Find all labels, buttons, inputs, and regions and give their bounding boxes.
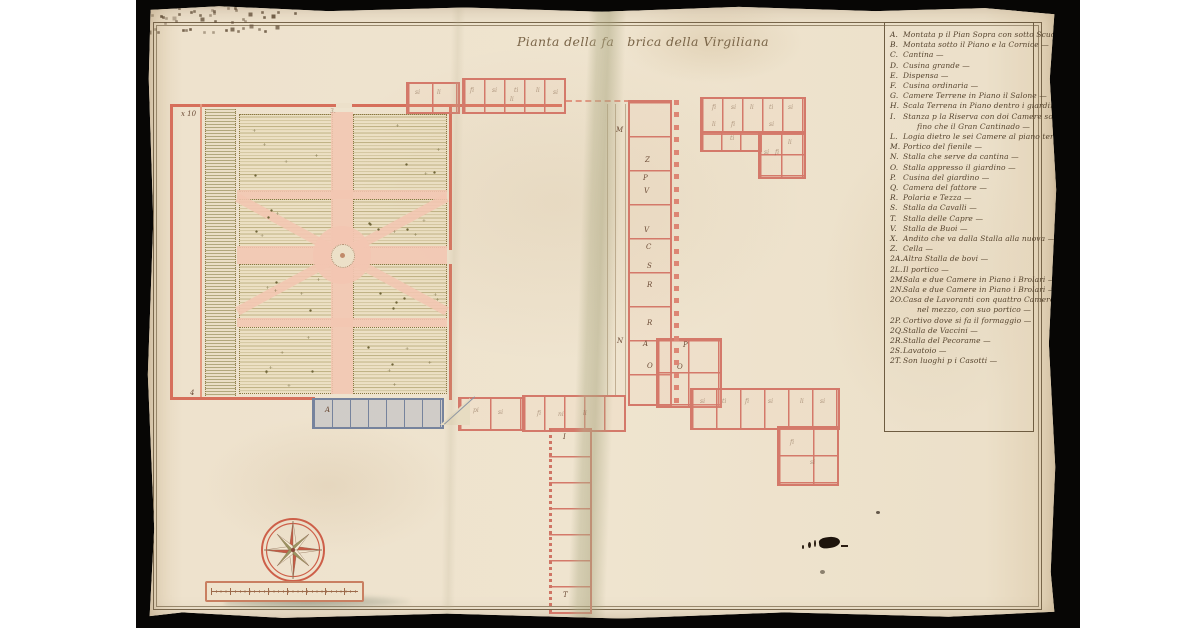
legend-letter: 2P. <box>890 316 903 325</box>
legend-entry: V.Stalla de Buoi — <box>890 224 968 233</box>
legend-letter: 2L. <box>890 265 903 274</box>
room-scribble: 3. <box>330 109 336 115</box>
colonnade-pillar <box>674 162 679 167</box>
room-scribble: fi <box>745 399 749 405</box>
room-scribble: si <box>820 399 825 405</box>
legend-text: Cortivo dove si fa il formaggio — <box>903 316 1031 325</box>
room-scribble: li <box>583 411 587 417</box>
garden-bed <box>353 327 447 394</box>
ink-speck <box>876 511 880 514</box>
building-northeast-upper <box>700 97 806 135</box>
legend-entry: 2A.Altra Stalla de bovi — <box>890 254 988 263</box>
legend-entry: O.Stalla appresso il giardino — <box>890 163 1016 172</box>
legend-entry: 2T.Son luoghi p i Casotti — <box>890 356 997 365</box>
legend-entry: 2M.Sala e due Camere in Piano i Brolari … <box>890 275 1056 284</box>
garden-bed <box>353 114 447 192</box>
legend-entry: G.Camere Terrene in Piano il Salone — <box>890 91 1047 100</box>
legend-letter: D. <box>890 61 903 70</box>
legend-entry: F.Cusina ordinaria — <box>890 81 978 90</box>
legend-entry: 2Q.Stalla de Vaccini — <box>890 326 978 335</box>
garden-circle-dot <box>340 253 345 258</box>
ink-speck <box>808 542 811 548</box>
legend-letter: 2M. <box>890 275 903 284</box>
legend-letter: B. <box>890 40 903 49</box>
room-scribble: si <box>769 122 774 128</box>
legend-entry: Q.Camera del fattore — <box>890 183 987 192</box>
tree-mark: + <box>280 351 284 356</box>
tree-mark <box>379 292 382 295</box>
room-scribble: pi <box>473 408 479 414</box>
room-letter-label: x 10 <box>181 111 196 118</box>
legend-entry: C.Cantina — <box>890 50 944 59</box>
legend-letter: 2Q. <box>890 326 903 335</box>
room-scribble: fi <box>537 411 541 417</box>
garden-path-row <box>237 190 447 199</box>
room-scribble: si <box>498 410 503 416</box>
legend-letter: 2A. <box>890 254 903 263</box>
tree-mark <box>267 216 270 219</box>
legend-entry: M.Portico del fienile — <box>890 142 982 151</box>
room-scribble: li <box>712 122 716 128</box>
legend-entry: P.Cusina del giardino — <box>890 173 989 182</box>
legend-entry: D.Cusina grande — <box>890 61 970 70</box>
legend-text: Son luoghi p i Casotti — <box>903 356 997 365</box>
legend-text: Cella — <box>903 244 933 253</box>
tree-mark: + <box>274 289 278 294</box>
tree-mark: + <box>266 286 270 291</box>
legend-letter: 2R. <box>890 336 903 345</box>
legend-box: A.Montata p il Pian Sopra con sotto Scud… <box>884 22 1034 432</box>
legend-text: Lavatoio — <box>903 346 947 355</box>
legend-entry: 2R.Stalla del Pecorame — <box>890 336 991 345</box>
tree-mark: + <box>287 384 291 389</box>
legend-text: Portico del fienile — <box>903 142 982 151</box>
legend-entry: 2P.Cortivo dove si fa il formaggio — <box>890 316 1031 325</box>
legend-entry: H.Scala Terrena in Piano dentro i giardi… <box>890 101 1068 110</box>
legend-entry: A.Montata p il Pian Sopra con sotto Scud… <box>890 30 1081 39</box>
colonnade-pillar <box>674 187 679 192</box>
legend-letter: 2T. <box>890 356 903 365</box>
room-letter-label: S <box>647 263 652 270</box>
tree-mark: + <box>422 219 426 224</box>
legend-entry: S.Stalla da Cavalli — <box>890 203 977 212</box>
legend-entry: X.Andito che va dalla Stalla alla nuova … <box>890 234 1055 243</box>
room-letter-label: R <box>647 320 652 327</box>
legend-text: Camera del fattore — <box>903 183 987 192</box>
legend-entry: 2N.Sala e due Camere in Piano i Brolari … <box>890 285 1056 294</box>
tree-mark: + <box>405 347 409 352</box>
room-letter-label: 4 <box>190 390 194 397</box>
tree-mark: + <box>393 383 397 388</box>
legend-text: Stalla da Cavalli — <box>903 203 977 212</box>
tree-mark: + <box>395 124 399 129</box>
legend-letter: F. <box>890 81 903 90</box>
tree-mark <box>433 171 436 174</box>
tree-mark: + <box>262 143 266 148</box>
room-letter-label: C <box>646 244 651 251</box>
legend-text: Stalla del Pecorame — <box>903 336 991 345</box>
room-scribble: si <box>810 460 815 466</box>
room-letter-label: R <box>647 282 652 289</box>
legend-letter: T. <box>890 214 903 223</box>
manuscript-scan: Pianta della fabrica della Virgiliana <box>0 0 1200 628</box>
tree-mark: + <box>314 154 318 159</box>
ink-speck <box>820 570 825 574</box>
legend-text: Camere Terrene in Piano il Salone — <box>903 91 1047 100</box>
legend-letter: A. <box>890 30 903 39</box>
legend-letter: 2S. <box>890 346 903 355</box>
room-letter-label: M <box>616 127 623 134</box>
room-scribble: li <box>750 105 754 111</box>
legend-letter: N. <box>890 152 903 161</box>
room-letter-label: P <box>643 175 648 182</box>
legend-text: fino che il Gran Cantinado — <box>917 122 1030 131</box>
garden-path-row <box>237 318 447 327</box>
legend-letter: V. <box>890 224 903 233</box>
tree-mark <box>377 228 380 231</box>
garden-bed <box>239 114 333 192</box>
room-letter-label: V <box>644 188 649 195</box>
legend-text: Il portico — <box>903 265 949 274</box>
tree-mark <box>391 363 394 366</box>
tree-mark: + <box>260 234 264 239</box>
tree-mark: + <box>428 361 432 366</box>
colonnade-pillar <box>674 274 679 279</box>
tree-mark: + <box>392 230 396 235</box>
colonnade-pillar <box>674 336 679 341</box>
legend-text: nel mezzo, con suo portico — <box>917 305 1031 314</box>
room-scribble: li <box>437 90 441 96</box>
colonnade-pillar <box>674 261 679 266</box>
legend-text: Stalla de Vaccini — <box>903 326 978 335</box>
room-scribble: si <box>764 150 769 156</box>
room-scribble: fi <box>731 122 735 128</box>
legend-text: Andito che va dalla Stalla alla nuova — <box>903 234 1055 243</box>
colonnade-pillar <box>674 398 679 403</box>
tree-mark: + <box>269 366 273 371</box>
room-letter-label: V <box>644 227 649 234</box>
room-scribble: fi <box>712 105 716 111</box>
room-scribble: li <box>510 97 514 103</box>
plan-title-part2: brica della Virgiliana <box>627 34 769 49</box>
legend-entry: 2L.Il portico — <box>890 265 949 274</box>
legend-letter: M. <box>890 142 903 151</box>
legend-letter: P. <box>890 173 903 182</box>
scale-bar <box>205 581 364 602</box>
room-scribble: fi <box>470 88 474 94</box>
legend-letter: I. <box>890 112 903 121</box>
compass-rose <box>259 516 327 584</box>
colonnade-pillar <box>674 125 679 130</box>
room-scribble: si <box>553 90 558 96</box>
tree-mark: + <box>435 298 439 303</box>
room-letter-label: A <box>325 407 330 414</box>
legend-entry: E.Dispensa — <box>890 71 949 80</box>
colonnade-pillar <box>674 323 679 328</box>
legend-letter: O. <box>890 163 903 172</box>
legend-text: Altra Stalla de bovi — <box>903 254 988 263</box>
legend-text: Sala e due Camere in Piano i Brolari — <box>903 275 1056 284</box>
room-scribble: ti <box>730 136 734 142</box>
road-line <box>625 104 626 396</box>
plan-title: Pianta della fabrica della Virgiliana <box>517 34 769 49</box>
legend-text: Polaria e Tezza — <box>903 193 972 202</box>
room-scribble: fi <box>775 150 779 156</box>
tree-mark: + <box>436 148 440 153</box>
legend-letter: G. <box>890 91 903 100</box>
legend-text: Stalla delle Capre — <box>903 214 983 223</box>
room-scribble: si <box>415 90 420 96</box>
room-letter-label: N <box>617 338 623 345</box>
room-scribble: fi <box>790 440 794 446</box>
legend-text: Cantina — <box>903 50 944 59</box>
room-scribble: ti <box>769 105 773 111</box>
legend-letter: H. <box>890 101 903 110</box>
room-scribble: si <box>731 105 736 111</box>
tree-mark <box>405 163 408 166</box>
legend-letter: E. <box>890 71 903 80</box>
legend-letter: C. <box>890 50 903 59</box>
tree-mark: + <box>264 371 268 376</box>
legend-letter: Z. <box>890 244 903 253</box>
tree-mark: + <box>424 172 428 177</box>
room-scribble: ti <box>722 399 726 405</box>
building-north-row <box>462 78 566 114</box>
tree-mark <box>369 223 372 226</box>
tree-mark: + <box>300 292 304 297</box>
legend-text: Sala e due Camere in Piano i Brolari — <box>903 285 1056 294</box>
paper-sheet: Pianta della fabrica della Virgiliana <box>146 5 1058 621</box>
room-scribble: li <box>788 140 792 146</box>
building-blue-addition <box>312 398 444 429</box>
garden-gate-north <box>336 103 352 108</box>
legend-letter: Q. <box>890 183 903 192</box>
room-scribble: ti <box>514 88 518 94</box>
room-scribble: si <box>788 105 793 111</box>
colonnade-pillar <box>674 298 679 303</box>
legend-text: Stalla de Buoi — <box>903 224 968 233</box>
ink-speck <box>814 540 816 547</box>
legend-text: Stanza p la Riserva con doi Camere sotto… <box>903 112 1122 121</box>
legend-letter: 2O. <box>890 295 903 304</box>
ink-speck <box>802 545 804 549</box>
colonnade-pillar <box>674 199 679 204</box>
tree-mark: + <box>275 212 279 217</box>
tree-mark: + <box>413 233 417 238</box>
garden-wall-west-inner <box>200 104 202 398</box>
room-scribble: ni <box>558 412 564 418</box>
garden-hedge-strip <box>205 109 236 396</box>
room-scribble: si <box>768 399 773 405</box>
tree-mark <box>395 301 398 304</box>
legend-letter: 2N. <box>890 285 903 294</box>
legend-text: Cusina ordinaria — <box>903 81 978 90</box>
colonnade-pillar <box>674 385 679 390</box>
room-letter-label: P <box>683 342 688 349</box>
colonnade-pillar <box>674 150 679 155</box>
legend-text: Dispensa — <box>903 71 949 80</box>
colonnade-pillar <box>674 373 679 378</box>
room-scribble: li <box>800 399 804 405</box>
colonnade-pillar <box>674 212 679 217</box>
legend-letter: X. <box>890 234 903 243</box>
colonnade-pillar <box>674 348 679 353</box>
tree-mark: + <box>387 369 391 374</box>
colonnade-pillar <box>674 137 679 142</box>
scale-bar-line <box>211 591 358 592</box>
tree-mark: + <box>252 129 256 134</box>
colonnade-pillar <box>674 112 679 117</box>
colonnade-pillar <box>674 224 679 229</box>
legend-letter: S. <box>890 203 903 212</box>
legend-text: Cusina del giardino — <box>903 173 989 182</box>
room-scribble: si <box>700 399 705 405</box>
room-letter-label: O <box>647 363 653 370</box>
legend-entry: I.Stanza p la Riserva con doi Camere sot… <box>890 112 1122 121</box>
colonnade-pillar <box>674 100 679 105</box>
room-letter-label: I <box>563 434 566 441</box>
room-letter-label: Z <box>645 157 650 164</box>
colonnade-pillar <box>674 249 679 254</box>
legend-entry: fino che il Gran Cantinado — <box>890 122 1030 131</box>
building-southeast-wing <box>777 426 839 486</box>
legend-entry: L.Logia dietro le sei Camere al piano te… <box>890 132 1082 141</box>
legend-entry: R.Polaria e Tezza — <box>890 193 972 202</box>
tree-mark: + <box>284 160 288 165</box>
tree-mark <box>270 209 273 212</box>
legend-entry: B.Montata sotto il Piano e la Cornice — … <box>890 40 1147 49</box>
legend-entry: T.Stalla delle Capre — <box>890 214 983 223</box>
tree-mark: + <box>316 278 320 283</box>
room-letter-label: A <box>643 341 648 348</box>
legend-text: Scala Terrena in Piano dentro i giardini… <box>903 101 1068 110</box>
legend-letter: L. <box>890 132 903 141</box>
garden-wall-west-outer <box>170 104 173 400</box>
room-scribble: si <box>492 88 497 94</box>
ink-speck <box>841 545 848 547</box>
room-letter-label: T <box>563 592 568 599</box>
legend-entry: nel mezzo, con suo portico — <box>890 305 1031 314</box>
building-southeast-row <box>690 388 840 430</box>
legend-letter: R. <box>890 193 903 202</box>
colonnade-pillar <box>674 311 679 316</box>
colonnade-pillar <box>674 236 679 241</box>
legend-text: Stalla appresso il giardino — <box>903 163 1016 172</box>
garden-wall-south <box>170 397 315 400</box>
room-scribble: li <box>536 88 540 94</box>
legend-entry: Z.Cella — <box>890 244 933 253</box>
legend-text: Montata sotto il Piano e la Cornice — qu… <box>903 40 1147 49</box>
legend-text: Cusina grande — <box>903 61 970 70</box>
colonnade-pillar <box>674 174 679 179</box>
legend-text: Stalla che serve da cantina — <box>903 152 1019 161</box>
colonnade-pillar <box>674 360 679 365</box>
legend-entry: N.Stalla che serve da cantina — <box>890 152 1019 161</box>
tree-mark: + <box>306 336 310 341</box>
legend-entry: 2S.Lavatoio — <box>890 346 947 355</box>
colonnade-pillar <box>674 286 679 291</box>
